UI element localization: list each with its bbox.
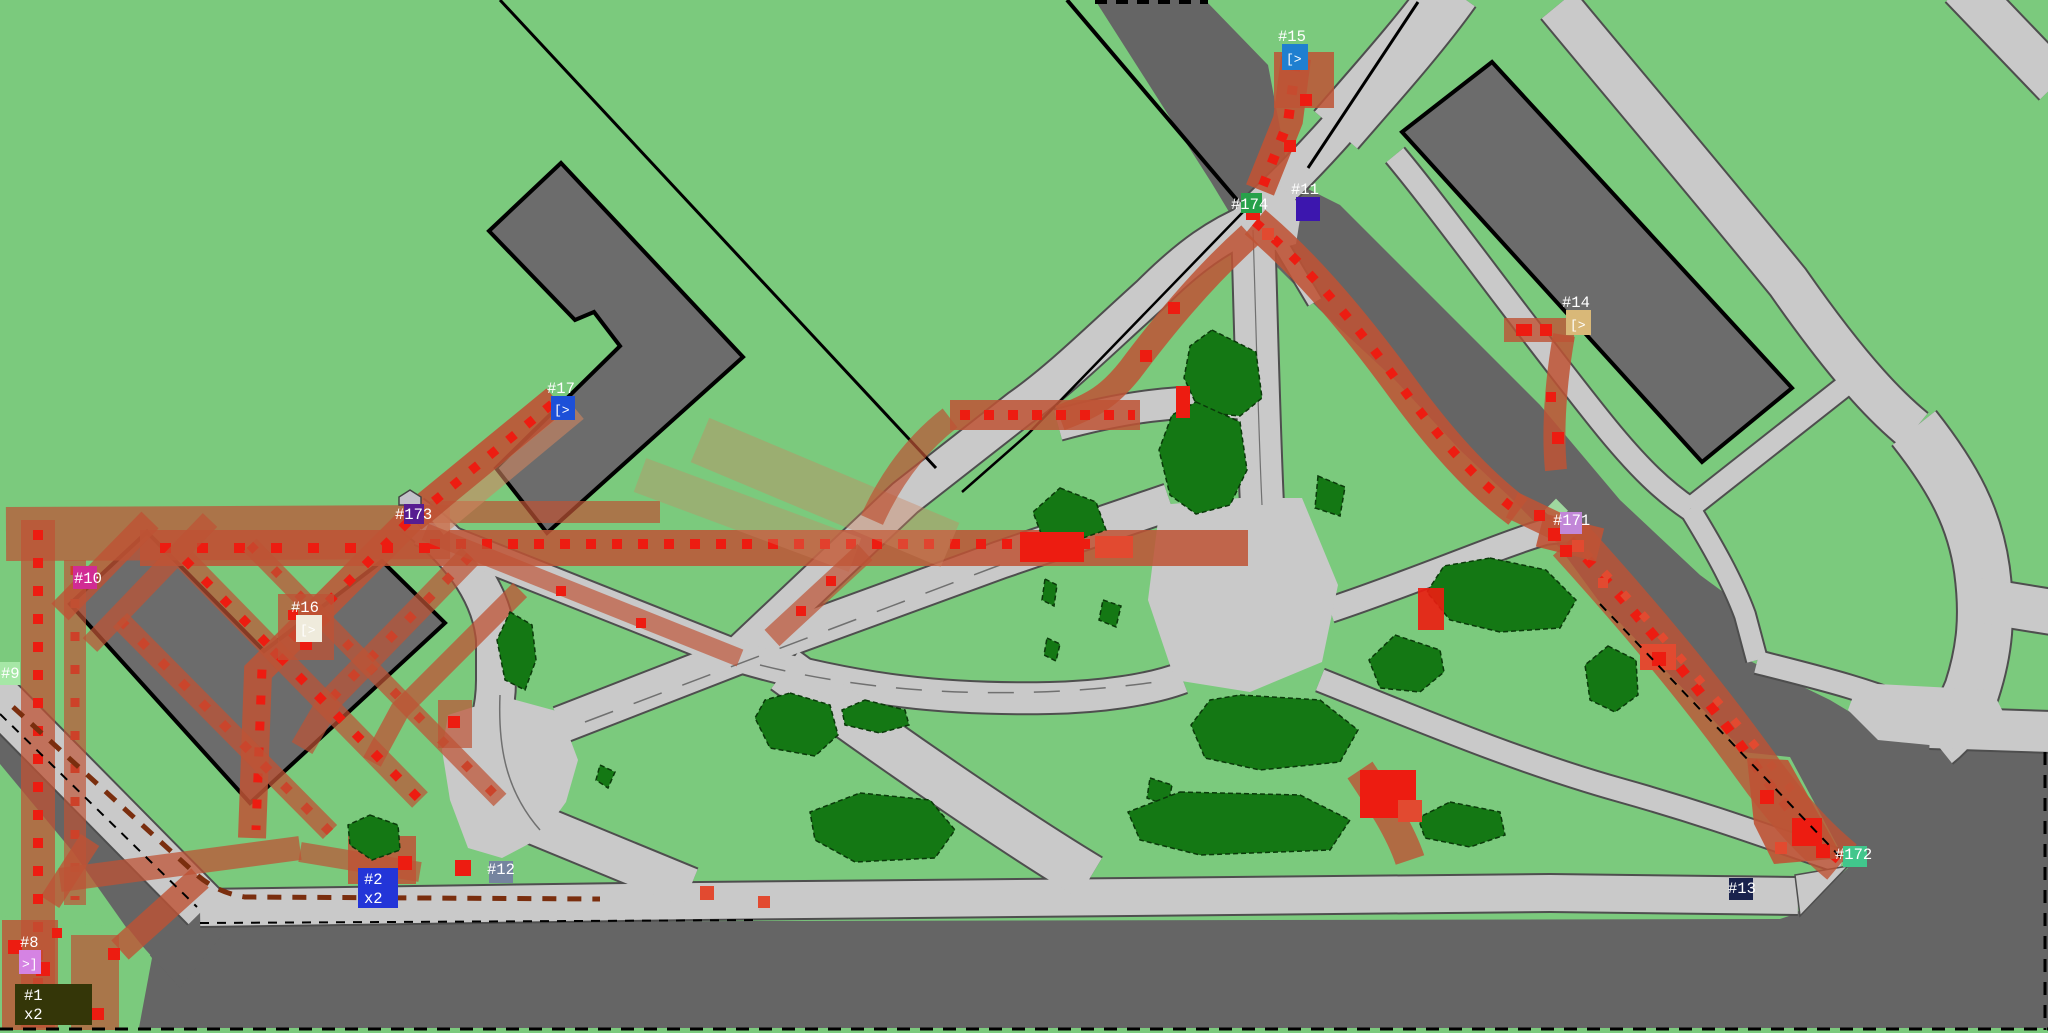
svg-text:#13: #13 <box>1728 880 1756 898</box>
svg-text:x2: x2 <box>364 890 383 908</box>
svg-text:#1: #1 <box>24 987 43 1005</box>
svg-text:#12: #12 <box>487 861 515 879</box>
svg-text:#14: #14 <box>1562 294 1590 312</box>
svg-text:#16: #16 <box>291 599 319 617</box>
svg-text:#173: #173 <box>395 506 432 524</box>
svg-text:#2: #2 <box>364 871 383 889</box>
svg-text:[>: [> <box>300 623 316 638</box>
svg-text:x2: x2 <box>24 1006 43 1024</box>
svg-text:#9: #9 <box>1 665 20 683</box>
svg-text:#174: #174 <box>1231 196 1268 214</box>
svg-text:#17: #17 <box>547 380 575 398</box>
svg-text:[>: [> <box>1570 318 1586 333</box>
svg-text:[>: [> <box>554 403 570 418</box>
svg-text:#8: #8 <box>20 934 39 952</box>
svg-text:#172: #172 <box>1835 846 1872 864</box>
svg-text:>]: >] <box>22 957 38 972</box>
svg-text:#15: #15 <box>1278 28 1306 46</box>
svg-text:#10: #10 <box>74 570 102 588</box>
svg-text:[>: [> <box>1286 52 1302 67</box>
svg-text:#171: #171 <box>1553 512 1590 530</box>
svg-text:#11: #11 <box>1291 181 1319 199</box>
